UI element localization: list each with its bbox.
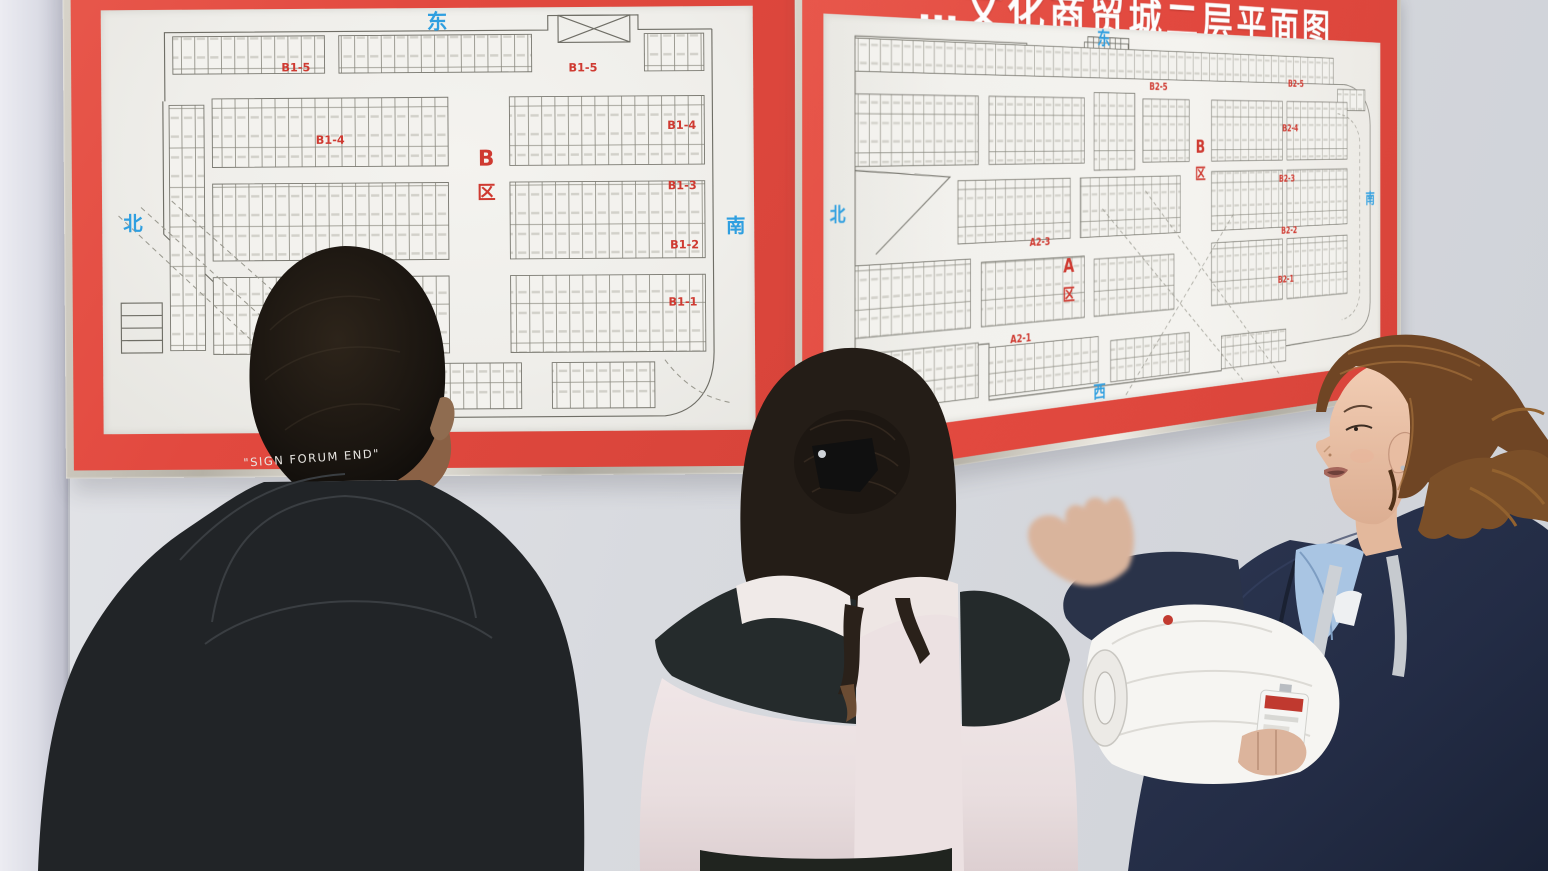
presenter-left-hand bbox=[1238, 729, 1306, 776]
presenter-woman bbox=[1028, 335, 1548, 871]
paper-red-mark bbox=[1163, 615, 1173, 625]
presenter-pointing-hand bbox=[1028, 498, 1134, 586]
photo-scene: 东 北 南 西 B 区 A B1-5 B1-5 B1-4 B1-4 B1-3 B… bbox=[0, 0, 1548, 871]
woman-clip-bead bbox=[818, 450, 826, 458]
visitor-woman bbox=[640, 348, 1078, 871]
people-layer: "SIGN FORUM END" bbox=[0, 0, 1548, 871]
man-head bbox=[249, 246, 445, 482]
visitor-man: "SIGN FORUM END" bbox=[38, 246, 584, 871]
man-jacket bbox=[38, 480, 584, 871]
